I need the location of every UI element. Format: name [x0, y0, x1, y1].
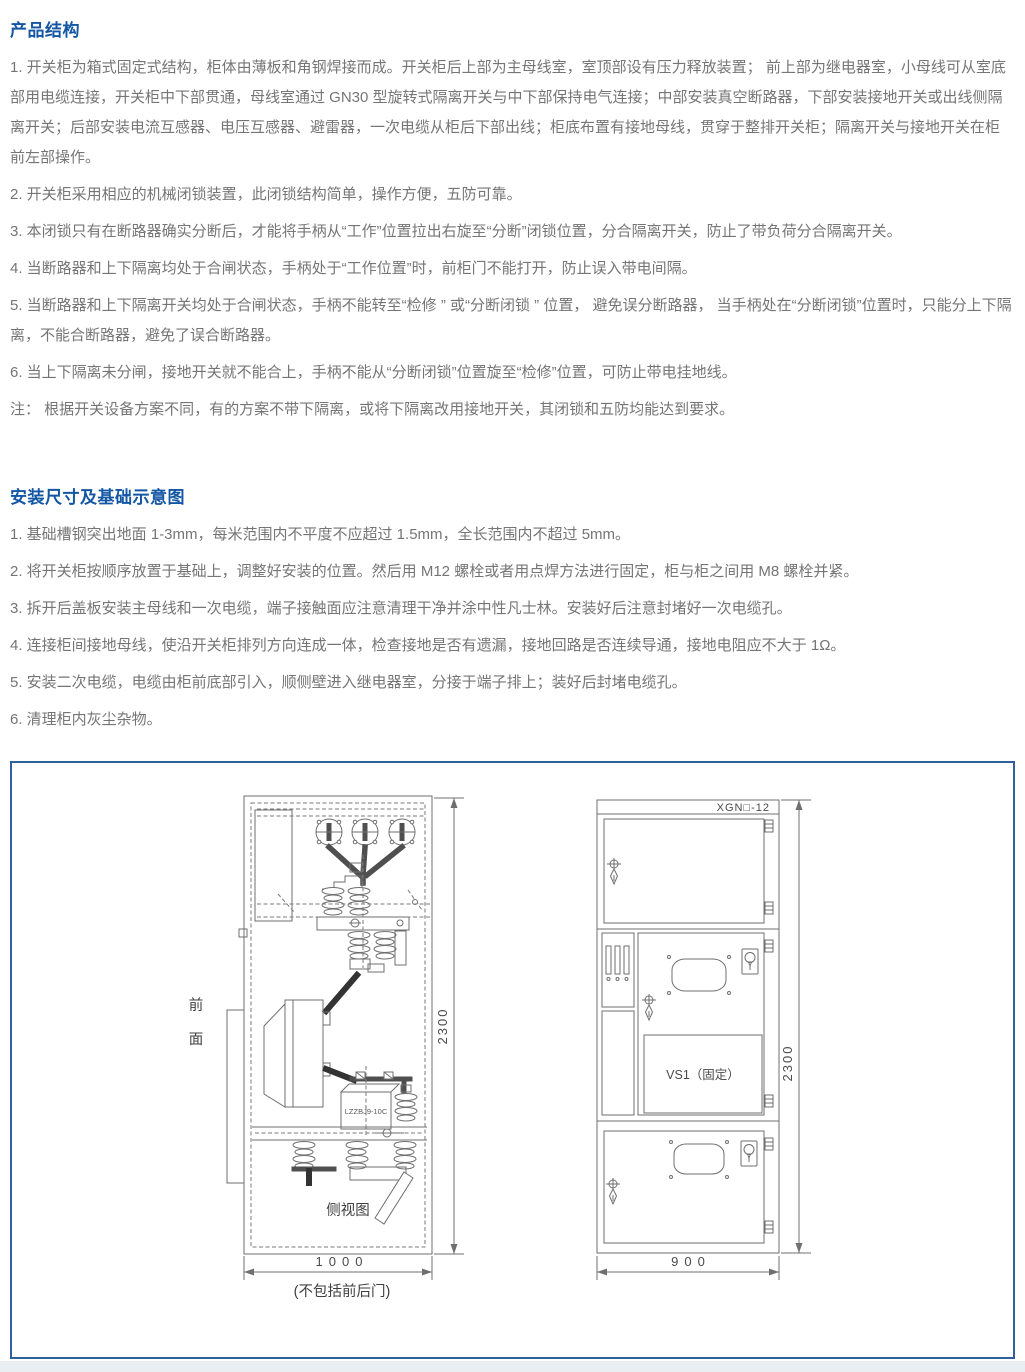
paragraph: 6. 清理柜内灰尘杂物。 [10, 705, 1013, 735]
side-dim-height: 2300 [434, 798, 464, 1254]
indicator-lamp-icon-bottom [741, 1141, 757, 1166]
side-dim-width: 1000 [244, 1254, 432, 1280]
paragraph: 5. 当断路器和上下隔离开关均处于合闸状态，手柄不能转至“检修 ” 或“分断闭锁… [10, 291, 1013, 351]
lower-disconnector [348, 931, 406, 972]
front-dim-width: 900 [597, 1254, 779, 1280]
wall-fitting [239, 929, 247, 937]
paragraph: 1. 基础槽钢突出地面 1-3mm，每米范围内不平度不应超过 1.5mm，全长范… [10, 520, 1013, 550]
front-dim-height-label: 2300 [780, 1045, 795, 1082]
diagram-panel: LZZBJ9-10C 前 面 侧视图 [10, 761, 1015, 1359]
vacuum-breaker [264, 1000, 330, 1107]
paragraph: 注： 根据开关设备方案不同，有的方案不带下隔离，或将下隔离改用接地开关，其闭锁和… [10, 395, 1013, 425]
side-dim-height-label: 2300 [435, 1008, 450, 1045]
side-dim-note: (不包括前后门) [294, 1283, 391, 1300]
section-title-installation: 安装尺寸及基础示意图 [10, 483, 1015, 508]
front-view-drawing: XGN□-12 VS1（固定） [597, 800, 811, 1280]
link-upper [326, 975, 357, 1011]
door-handle-icon [607, 858, 621, 884]
paragraph: 2. 开关柜采用相应的机械闭锁装置，此闭锁结构简单，操作方便，五防可靠。 [10, 180, 1013, 210]
paragraph: 4. 连接柜间接地母线，使沿开关柜排列方向连成一体，检查接地是否有遗漏，接地回路… [10, 631, 1013, 661]
door-hinges [765, 820, 773, 1233]
front-face-label-1: 前 [189, 997, 204, 1014]
front-cabinet-outline [597, 800, 779, 1253]
side-view-drawing: LZZBJ9-10C 前 面 侧视图 [189, 796, 464, 1300]
floor-shelf [252, 1127, 427, 1140]
door-handle-icon-mid [642, 994, 656, 1020]
operating-channel [227, 1010, 244, 1183]
ventilation-louvers [606, 946, 629, 981]
observation-window-mid [668, 956, 731, 995]
paragraph: 3. 本闭锁只有在断路器确实分断后，才能将手柄从“工作”位置拉出右旋至“分断”闭… [10, 217, 1013, 247]
page-footer-strip [0, 1361, 1025, 1372]
door-handle-icon-bottom [606, 1178, 620, 1204]
left-lower-panel [602, 1011, 634, 1115]
paragraph: 1. 开关柜为箱式固定式结构，柜体由薄板和角钢焊接而成。开关柜后上部为主母线室，… [10, 53, 1013, 173]
busbar-conductors [329, 847, 402, 883]
front-dim-width-label: 900 [671, 1254, 711, 1269]
page-content: 产品结构 1. 开关柜为箱式固定式结构，柜体由薄板和角钢焊接而成。开关柜后上部为… [0, 16, 1025, 735]
paragraph: 3. 拆开后盖板安装主母线和一次电缆，端子接触面应注意清理干净并涂中性凡士林。安… [10, 594, 1013, 624]
section-product-structure: 1. 开关柜为箱式固定式结构，柜体由薄板和角钢焊接而成。开关柜后上部为主母线室，… [10, 53, 1015, 425]
vcb-label: VS1（固定） [666, 1067, 740, 1082]
paragraph: 6. 当上下隔离未分闸，接地开关就不能合上，手柄不能从“分断闭锁”位置旋至“检修… [10, 358, 1013, 388]
section-installation: 1. 基础槽钢突出地面 1-3mm，每米范围内不平度不应超过 1.5mm，全长范… [10, 520, 1015, 735]
partition-shelf [257, 904, 430, 930]
indicator-lamp-icon-mid [742, 949, 758, 974]
paragraph: 2. 将开关柜按顺序放置于基础上，调整好安装的位置。然后用 M12 螺栓或者用点… [10, 557, 1013, 587]
side-view-caption: 侧视图 [326, 1202, 370, 1219]
installation-diagram: LZZBJ9-10C 前 面 侧视图 [12, 763, 1013, 1353]
front-dim-height: 2300 [780, 800, 811, 1253]
busbar-bushings [316, 819, 415, 845]
observation-window-bottom [670, 1141, 729, 1179]
section-title-product-structure: 产品结构 [10, 16, 1015, 41]
upper-disconnector [278, 863, 422, 915]
paragraph: 5. 安装二次电缆，电缆由柜前底部引入，顺侧壁进入继电器室，分接于端子排上；装好… [10, 668, 1013, 698]
paragraph: 4. 当断路器和上下隔离均处于合闸状态，手柄处于“工作位置”时，前柜门不能打开，… [10, 254, 1013, 284]
front-face-label-2: 面 [189, 1032, 204, 1048]
model-label: XGN□-12 [717, 802, 770, 814]
side-dim-width-label: 1000 [316, 1254, 369, 1269]
relay-door [604, 819, 764, 923]
current-transformer: LZZBJ9-10C [341, 1084, 399, 1129]
